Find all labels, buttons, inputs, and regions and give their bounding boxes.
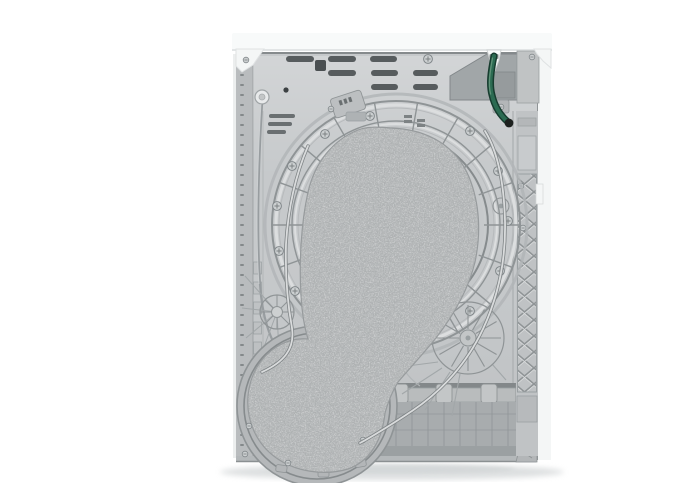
- appliance-rear-svg: [40, 16, 700, 483]
- right-white-side: [538, 54, 551, 460]
- panel-screw-top: [424, 55, 433, 64]
- hose-tip: [505, 119, 514, 128]
- panel-hole: [283, 87, 288, 92]
- side-notch-tab: [536, 184, 543, 204]
- clip-hole: [315, 60, 326, 71]
- hose-bracket-box: [517, 51, 539, 103]
- appliance-rear-photo: [40, 16, 700, 483]
- top-worktop-lid: [232, 33, 552, 56]
